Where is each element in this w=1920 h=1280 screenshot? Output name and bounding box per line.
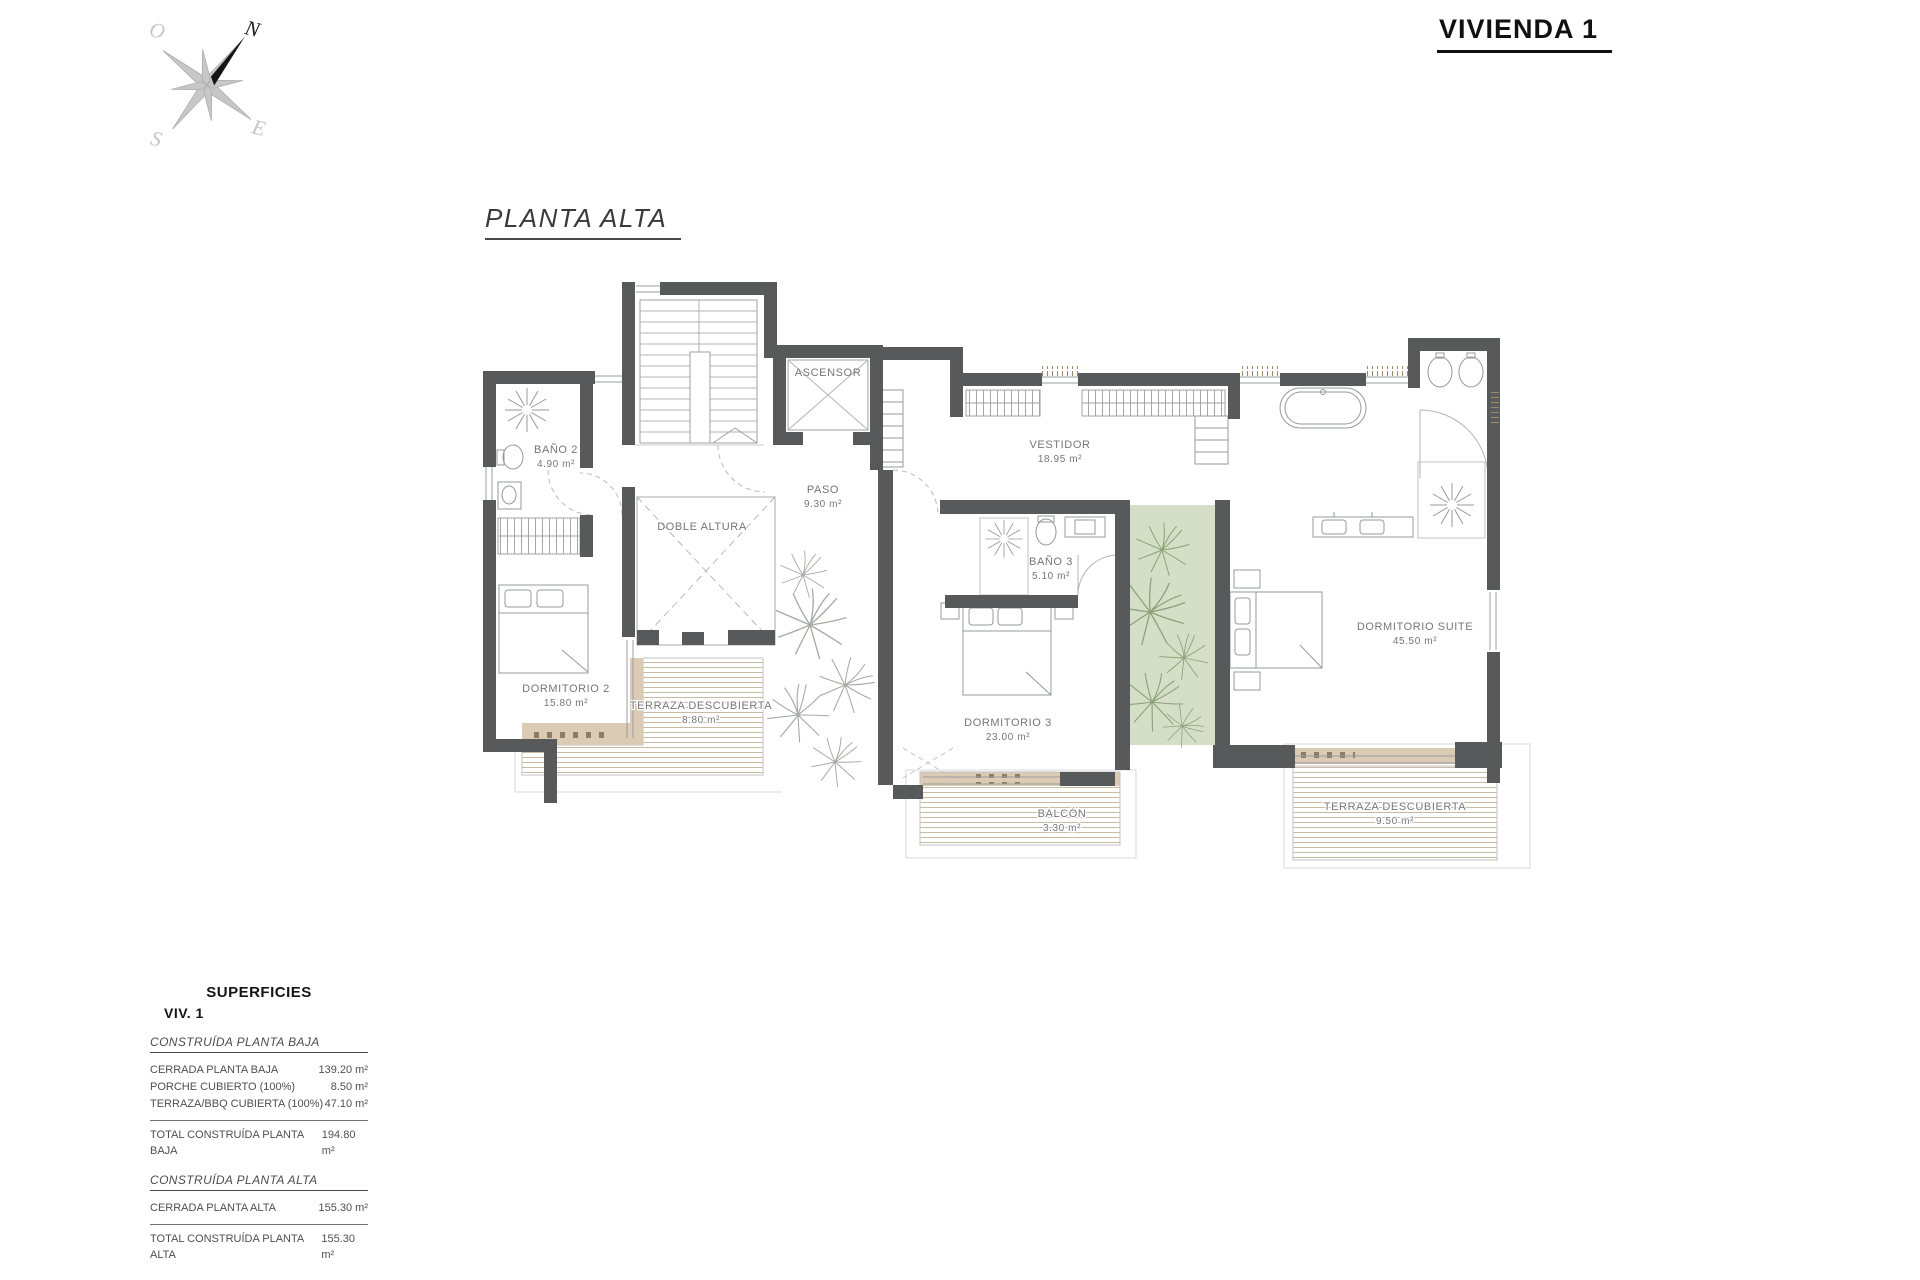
room-area-bano3: 5.10 m² <box>1032 571 1070 582</box>
row-value: 8.50 m² <box>331 1079 368 1096</box>
room-label-terraza-este: TERRAZA DESCUBIERTA <box>1324 801 1466 813</box>
row-value: 47.10 m² <box>325 1096 368 1113</box>
total-label: TOTAL CONSTRUÍDA PLANTA BAJA <box>150 1127 322 1159</box>
suite-bath-fixtures <box>1418 353 1488 538</box>
bed-suite <box>1230 570 1322 690</box>
table-row: TERRAZA/BBQ CUBIERTA (100%) 47.10 m² <box>150 1096 368 1113</box>
compass-needle <box>208 35 250 86</box>
compass-w: O <box>147 17 168 44</box>
row-label: CERRADA PLANTA ALTA <box>150 1200 276 1217</box>
compass-e: E <box>249 114 268 141</box>
room-label-doble-altura: DOBLE ALTURA <box>657 521 747 533</box>
room-label-vestidor: VESTIDOR <box>1029 439 1090 451</box>
toilet-icon <box>1036 519 1056 545</box>
room-area-dorm3: 23.00 m² <box>986 732 1030 743</box>
shower-icon <box>1430 483 1474 527</box>
row-label: CERRADA PLANTA BAJA <box>150 1062 278 1079</box>
total-planta-baja: TOTAL CONSTRUÍDA PLANTA BAJA 194.80 m² <box>150 1127 368 1159</box>
room-area-suite: 45.50 m² <box>1393 636 1437 647</box>
room-label-bano3: BAÑO 3 <box>1029 555 1073 568</box>
room-label-ascensor: ASCENSOR <box>795 367 862 379</box>
room-area-vestidor: 18.95 m² <box>1038 454 1082 465</box>
room-label-dorm3: DORMITORIO 3 <box>964 717 1052 729</box>
room-label-balcon: BALCÓN <box>1038 807 1087 820</box>
room-area-bano2: 4.90 m² <box>537 459 575 470</box>
double-height-void <box>637 497 775 645</box>
table-row: PORCHE CUBIERTO (100%) 8.50 m² <box>150 1079 368 1096</box>
sink-icon <box>1459 357 1483 387</box>
total-label: TOTAL CONSTRUÍDA PLANTA ALTA <box>150 1231 321 1263</box>
compass-s: S <box>148 126 164 152</box>
plan-sheet: VIVIENDA 1 PLANTA ALTA <box>0 0 1920 1280</box>
room-area-paso: 9.30 m² <box>804 499 842 510</box>
shower-icon <box>985 520 1022 557</box>
row-value: 139.20 m² <box>318 1062 368 1079</box>
room-label-bano2: BAÑO 2 <box>534 443 578 456</box>
row-value: 155.30 m² <box>318 1200 368 1217</box>
room-label-terraza-oeste: TERRAZA DESCUBIERTA <box>630 700 772 712</box>
room-label-paso: PASO <box>807 484 839 496</box>
section-planta-baja: CONSTRUÍDA PLANTA BAJA <box>150 1035 368 1053</box>
vestidor-closets <box>966 390 1228 464</box>
garden-plants-gray <box>759 551 953 790</box>
row-label: PORCHE CUBIERTO (100%) <box>150 1079 295 1096</box>
room-area-terraza-este: 9.50 m² <box>1376 816 1414 827</box>
bed-dorm3 <box>941 603 1073 695</box>
sink-icon <box>1428 357 1452 387</box>
compass-n: N <box>242 15 263 42</box>
suite-vanity <box>1313 512 1413 537</box>
surfaces-title: SUPERFICIES <box>150 984 368 1001</box>
toilet-icon <box>503 445 523 469</box>
shelf-column-hall <box>880 390 903 467</box>
surfaces-table: SUPERFICIES VIV. 1 CONSTRUÍDA PLANTA BAJ… <box>150 984 368 1280</box>
room-label-dorm2: DORMITORIO 2 <box>522 683 610 695</box>
section-planta-alta: CONSTRUÍDA PLANTA ALTA <box>150 1173 368 1191</box>
total-planta-alta: TOTAL CONSTRUÍDA PLANTA ALTA 155.30 m² <box>150 1231 368 1263</box>
table-row: CERRADA PLANTA BAJA 139.20 m² <box>150 1062 368 1079</box>
compass-rose: N E S O <box>87 0 322 201</box>
shower-icon <box>505 388 549 432</box>
bathtub-icon <box>1280 388 1366 428</box>
room-label-suite: DORMITORIO SUITE <box>1357 621 1473 633</box>
total-value: 155.30 m² <box>321 1231 368 1263</box>
room-area-terraza-oeste: 8.80 m² <box>682 715 720 726</box>
staircase <box>640 300 757 443</box>
total-value: 194.80 m² <box>322 1127 368 1159</box>
surfaces-subtitle: VIV. 1 <box>164 1005 368 1021</box>
room-area-dorm2: 15.80 m² <box>544 698 588 709</box>
room-area-balcon: 3.30 m² <box>1043 823 1081 834</box>
row-label: TERRAZA/BBQ CUBIERTA (100%) <box>150 1096 323 1113</box>
table-row: CERRADA PLANTA ALTA 155.30 m² <box>150 1200 368 1217</box>
bed-dorm2 <box>499 585 588 673</box>
